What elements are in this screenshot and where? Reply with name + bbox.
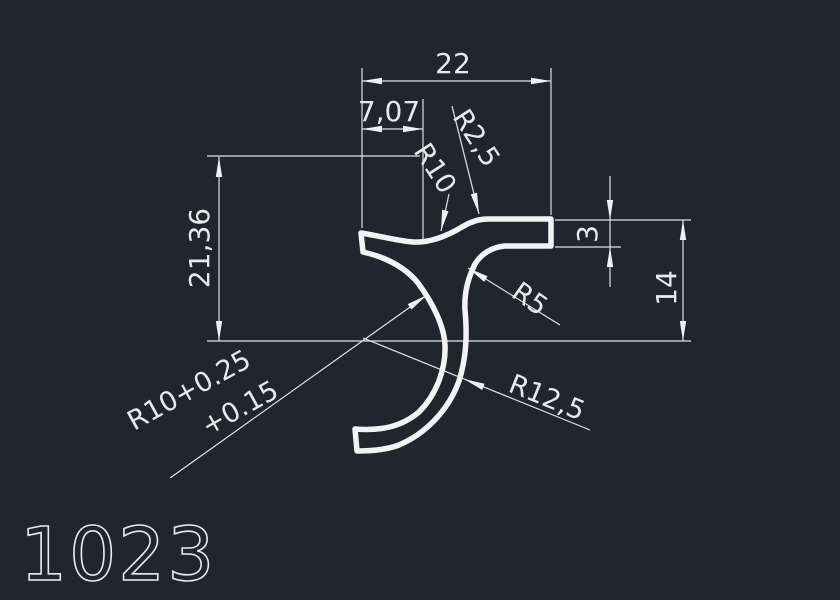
arrowhead-14-top xyxy=(680,220,686,240)
arrowhead-2136-bottom xyxy=(216,321,222,341)
dim-label-right-height: 14 xyxy=(650,270,683,306)
arrowhead-3-bottom xyxy=(607,247,613,267)
radius-label-r25: R2,5 xyxy=(446,104,506,173)
profile-outline xyxy=(355,219,551,451)
cad-drawing-viewport: 22 7,07 21,36 3 14 R2,5 R10 R5 R12,5 R10… xyxy=(0,0,840,600)
arrowhead-r10tol xyxy=(408,295,427,310)
arrowhead-3-top xyxy=(607,200,613,220)
arrowhead-r25 xyxy=(471,193,479,214)
arrowhead-14-bottom xyxy=(680,321,686,341)
dim-label-left-height: 21,36 xyxy=(183,208,216,288)
arrowhead-22-left xyxy=(362,78,382,84)
extension-lines xyxy=(207,68,691,341)
dim-label-bar-thickness: 3 xyxy=(571,225,604,243)
dim-label-inner-width: 7,07 xyxy=(358,95,420,128)
dimension-texts: 22 7,07 21,36 3 14 R2,5 R10 R5 R12,5 R10… xyxy=(122,47,683,442)
arrowhead-r125 xyxy=(464,379,485,390)
arrowhead-r10 xyxy=(441,210,449,231)
dim-label-overall-width: 22 xyxy=(435,47,471,80)
arrowhead-2136-top xyxy=(216,157,222,177)
radius-label-r125: R12,5 xyxy=(504,369,589,427)
arrowhead-22-right xyxy=(531,78,551,84)
radius-label-r5: R5 xyxy=(506,276,553,322)
part-number: 1023 xyxy=(20,512,216,598)
cad-drawing-canvas: 22 7,07 21,36 3 14 R2,5 R10 R5 R12,5 R10… xyxy=(0,0,840,600)
radius-label-r10: R10 xyxy=(407,138,462,199)
